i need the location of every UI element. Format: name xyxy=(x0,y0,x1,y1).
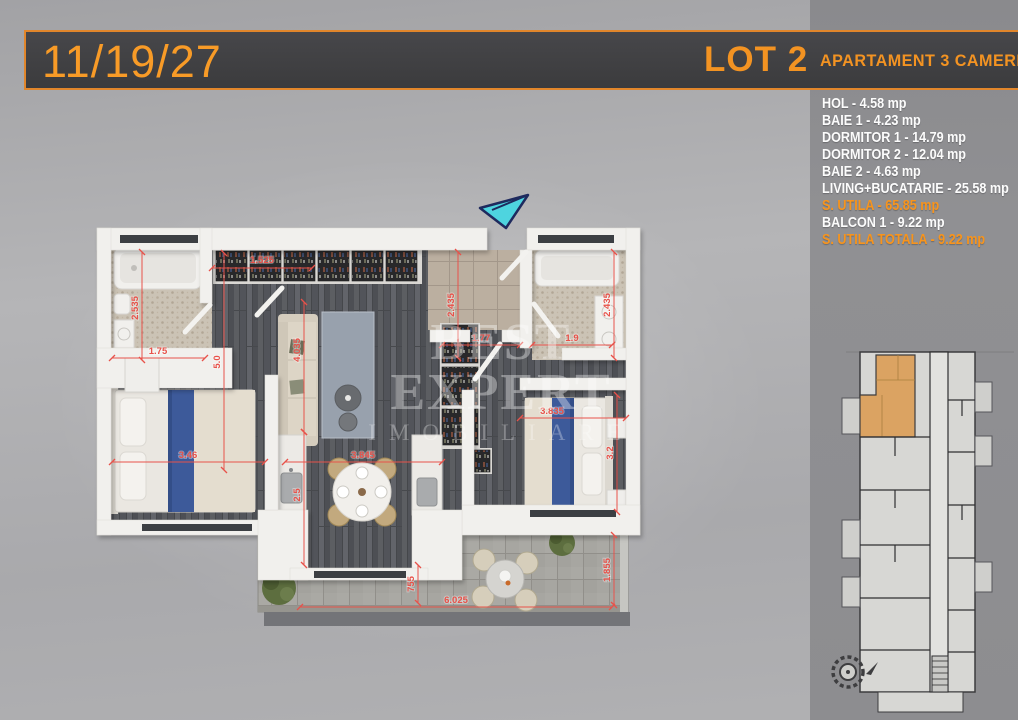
bathtub-2 xyxy=(535,250,619,286)
list-item: HOL - 4.58 mp xyxy=(822,95,1009,112)
corridor xyxy=(930,352,948,692)
hall-floor xyxy=(428,250,520,330)
dimension-label: 3.2 xyxy=(605,446,616,459)
dimension-label: 2.435 xyxy=(602,292,613,316)
wardrobe-row xyxy=(213,248,422,284)
list-item: DORMITOR 1 - 14.79 mp xyxy=(822,129,1009,146)
list-item: DORMITOR 2 - 12.04 mp xyxy=(822,146,1009,163)
dimension-label: 3.835 xyxy=(540,406,564,417)
dimension-label: 2.5 xyxy=(292,488,303,502)
unit-number: 11/19/27 xyxy=(42,36,222,88)
dimension-label: 755 xyxy=(406,575,417,592)
dimension-label: 2.535 xyxy=(130,295,141,319)
bathtub-1 xyxy=(114,247,202,289)
dimension-label: 4.035 xyxy=(292,337,303,361)
dimension-label: 3.46 xyxy=(179,450,198,461)
apartment-type: APARTAMENT 3 CAMERE xyxy=(820,51,1018,71)
living-extension-floor xyxy=(305,520,412,568)
lot-label: LOT 2 xyxy=(704,40,808,80)
coffee-table xyxy=(339,413,357,431)
header-bar: 11/19/27 LOT 2 APARTAMENT 3 CAMERE xyxy=(24,30,1018,90)
dimension-label: 3.845 xyxy=(351,450,375,461)
bed-2 xyxy=(525,396,613,514)
dimension-label: 1.525 xyxy=(250,255,274,266)
dimension-label: 1.77 xyxy=(472,333,491,344)
list-item: BALCON 1 - 9.22 mp xyxy=(822,214,1009,231)
dimension-label: 6.025 xyxy=(444,595,468,606)
dimension-label: 2.435 xyxy=(446,292,457,316)
toilet xyxy=(114,294,130,314)
dimension-label: 5.0 xyxy=(212,355,223,368)
window xyxy=(142,524,252,531)
dining-table xyxy=(328,458,396,526)
window xyxy=(538,235,614,243)
dimension-label: 1.855 xyxy=(602,557,613,581)
floor-plan: 2.535 1.75 1.525 5.0 4.035 2.5 2.435 1.7… xyxy=(90,190,650,650)
flyer-page: { "header": { "unit_number": "11/19/27",… xyxy=(0,0,1018,720)
stairs xyxy=(932,656,948,692)
list-item-usable-area: S. UTILA - 65.85 mp xyxy=(822,197,1009,214)
kitchen-counter-right xyxy=(412,435,442,515)
room-area-list: HOL - 4.58 mp BAIE 1 - 4.23 mp DORMITOR … xyxy=(822,95,1018,248)
cabinet xyxy=(125,358,159,392)
entrance-arrow-icon xyxy=(480,195,528,228)
list-item: LIVING+BUCATARIE - 25.58 mp xyxy=(822,180,1009,197)
balcony-shadow xyxy=(264,612,630,626)
list-item-total-area: S. UTILA TOTALA - 9.22 mp xyxy=(822,231,1009,248)
sofa xyxy=(278,314,318,446)
list-item: BAIE 1 - 4.23 mp xyxy=(822,112,1009,129)
vanity-1 xyxy=(114,320,134,348)
list-item: BAIE 2 - 4.63 mp xyxy=(822,163,1009,180)
balcony-door-window xyxy=(314,571,406,578)
dimension-label: 1.75 xyxy=(149,346,168,357)
dimension-label: 1.9 xyxy=(565,333,578,344)
window xyxy=(530,510,616,517)
window xyxy=(120,235,198,243)
key-plan xyxy=(818,340,1018,720)
